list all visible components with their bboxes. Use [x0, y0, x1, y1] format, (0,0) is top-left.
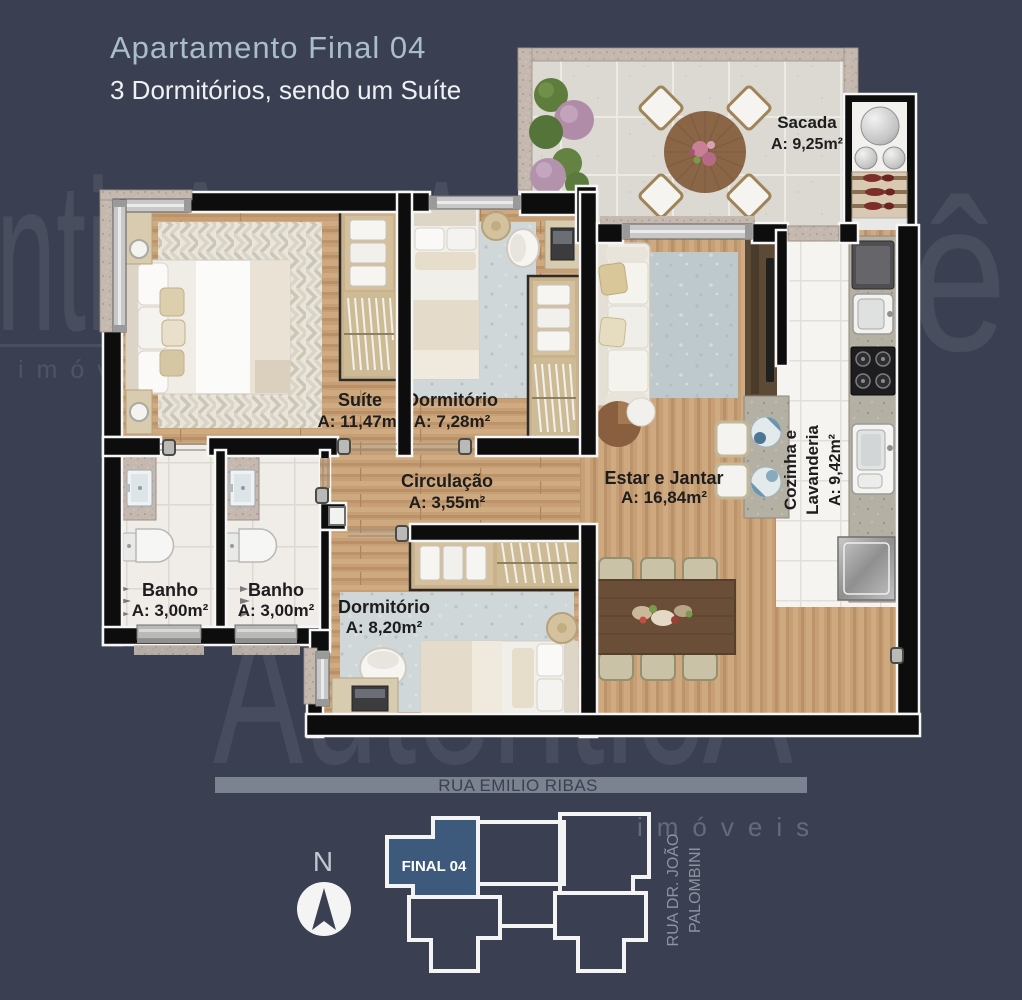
svg-text:A: 3,00m²: A: 3,00m² [132, 601, 209, 620]
svg-text:A: 7,28m²: A: 7,28m² [414, 412, 491, 431]
svg-text:A: 9,42m²: A: 9,42m² [827, 434, 844, 506]
svg-text:RUA EMILIO RIBAS: RUA EMILIO RIBAS [438, 776, 597, 795]
svg-text:A: 3,55m²: A: 3,55m² [409, 493, 486, 512]
svg-text:FINAL 04: FINAL 04 [402, 858, 467, 875]
svg-text:A: 8,20m²: A: 8,20m² [346, 618, 423, 637]
svg-text:A: 3,00m²: A: 3,00m² [238, 601, 315, 620]
svg-text:RUA DR. JOÃO: RUA DR. JOÃO [662, 834, 682, 947]
svg-text:Apartamento Final 04: Apartamento Final 04 [110, 30, 426, 65]
svg-text:Banho: Banho [248, 580, 304, 600]
svg-text:3 Dormitórios, sendo um Suíte: 3 Dormitórios, sendo um Suíte [110, 75, 461, 105]
svg-text:N: N [313, 846, 333, 877]
svg-text:Cozinha e: Cozinha e [781, 430, 800, 510]
svg-text:Suíte: Suíte [338, 390, 382, 410]
svg-text:Dormitório: Dormitório [338, 597, 430, 617]
svg-text:A: 9,25m²: A: 9,25m² [771, 136, 843, 153]
svg-text:Dormitório: Dormitório [406, 390, 498, 410]
svg-text:A: 16,84m²: A: 16,84m² [621, 488, 707, 507]
svg-text:Sacada: Sacada [777, 113, 837, 132]
svg-text:PALOMBINI: PALOMBINI [687, 847, 704, 933]
svg-text:Lavanderia: Lavanderia [803, 425, 822, 515]
svg-text:Circulação: Circulação [401, 471, 493, 491]
svg-text:Estar e Jantar: Estar e Jantar [604, 468, 723, 488]
svg-text:A: 11,47m²: A: 11,47m² [317, 412, 402, 431]
svg-text:Banho: Banho [142, 580, 198, 600]
